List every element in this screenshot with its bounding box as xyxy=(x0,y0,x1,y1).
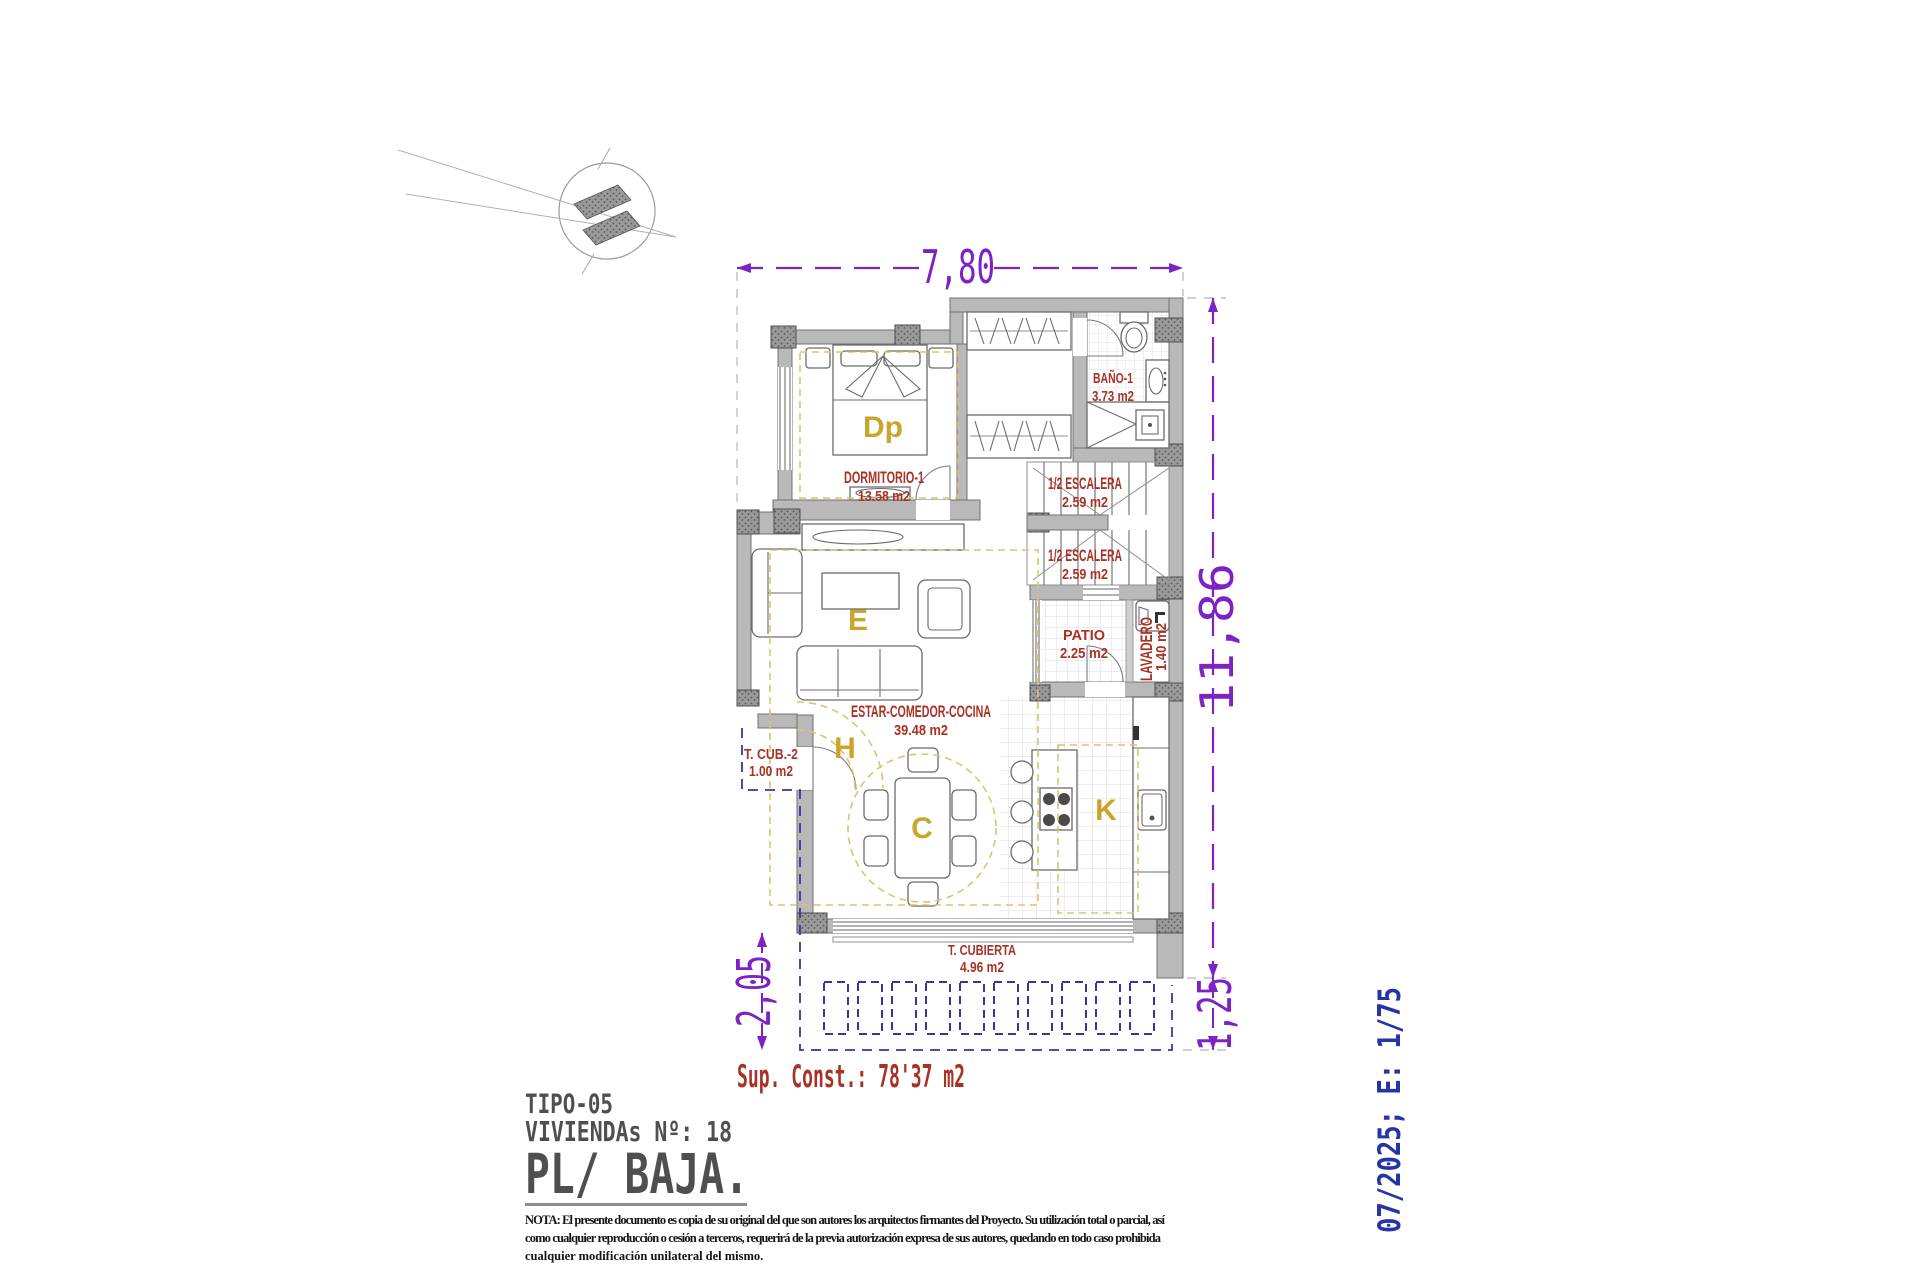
zone-label-dp: Dp xyxy=(863,411,903,444)
patio-name: PATIO xyxy=(1063,628,1105,644)
window-stairs xyxy=(1083,585,1119,600)
dimension-bottom-right: 1,25 xyxy=(1183,977,1242,1051)
note-line-2: como cualquier reproducción o cesión a t… xyxy=(525,1231,1162,1245)
bath-sink-icon xyxy=(1146,360,1169,402)
kitchen-sink-icon xyxy=(1138,790,1166,830)
label-tcub2: T. CUB.-2 1.00 m2 xyxy=(744,747,798,780)
zone-label-h: H xyxy=(834,732,856,765)
tcubierta-area: 4.96 m2 xyxy=(960,959,1004,976)
dormitorio-name: DORMITORIO-1 xyxy=(844,469,924,487)
bano-name: BAÑO-1 xyxy=(1093,369,1133,387)
north-arrow-icon xyxy=(398,148,676,274)
label-lavadero: LAVADERO 1.40 m2 xyxy=(1138,617,1170,681)
closet2-icon xyxy=(967,415,1071,458)
closet-icon xyxy=(967,312,1071,350)
escalera1-name: 1/2 ESCALERA xyxy=(1048,475,1122,493)
escalera1-area: 2.59 m2 xyxy=(1062,494,1108,511)
window-bedroom xyxy=(778,367,792,470)
tcubierta-name: T. CUBIERTA xyxy=(948,943,1016,959)
stool-icon xyxy=(1011,761,1033,863)
label-tcubierta: T. CUBIERTA 4.96 m2 xyxy=(948,943,1016,976)
dimension-top-label: 7,80 xyxy=(921,240,995,294)
estar-area: 39.48 m2 xyxy=(894,722,948,739)
dimension-right-label: 11,86 xyxy=(1190,563,1244,713)
tcub2-area: 1.00 m2 xyxy=(749,763,793,780)
lavadero-area: 1.40 m2 xyxy=(1153,623,1170,671)
label-escalera-2: 1/2 ESCALERA 2.59 m2 xyxy=(1048,547,1122,583)
title-underline xyxy=(525,1203,747,1206)
date-scale-stamp: 07/2025; E: 1/75 xyxy=(1372,987,1408,1233)
dimension-bottom-right-label: 1,25 xyxy=(1188,977,1242,1051)
title-block: TIPO-05 VIVIENDAs Nº: 18 PL/ BAJA. xyxy=(525,1089,749,1206)
escalera2-area: 2.59 m2 xyxy=(1062,566,1108,583)
patio-area: 2.25 m2 xyxy=(1060,645,1108,662)
zone-label-k: K xyxy=(1095,794,1117,827)
zone-label-c: C xyxy=(911,812,933,845)
note-line-1: NOTA: El presente documento es copia de … xyxy=(525,1213,1166,1227)
dimension-bottom-left-label: 2,05 xyxy=(727,955,781,1027)
tcub2-name: T. CUB.-2 xyxy=(744,747,798,763)
dormitorio-area: 13.58 m2 xyxy=(858,488,910,505)
shower-icon xyxy=(1087,402,1169,448)
zone-label-e: E xyxy=(848,604,868,637)
escalera2-name: 1/2 ESCALERA xyxy=(1048,547,1122,565)
dimension-right: 11,86 xyxy=(1187,298,1244,978)
sup-const-label: Sup. Const.: 78'37 m2 xyxy=(737,1059,965,1095)
dimension-bottom-left: 2,05 xyxy=(727,933,781,1050)
sideboard-icon xyxy=(802,524,964,550)
estar-name: ESTAR-COMEDOR-COCINA xyxy=(851,703,991,721)
label-escalera-1: 1/2 ESCALERA 2.59 m2 xyxy=(1048,475,1122,511)
terrace-pergola xyxy=(824,982,1154,1034)
sofa-icon xyxy=(797,646,922,700)
window-living xyxy=(833,919,1133,942)
bano-area: 3.73 m2 xyxy=(1092,388,1134,405)
note-paragraph: NOTA: El presente documento es copia de … xyxy=(525,1213,1166,1263)
loveseat-icon xyxy=(752,549,802,637)
planta-label: PL/ BAJA. xyxy=(525,1142,749,1206)
label-estar: ESTAR-COMEDOR-COCINA 39.48 m2 xyxy=(851,703,991,739)
floor-plan-sheet: 7,80 11,86 2,05 1,25 BAÑO-1 3.73 m2 DORM… xyxy=(0,0,1920,1280)
toilet-icon xyxy=(1120,312,1148,352)
window-patio xyxy=(1030,600,1042,682)
note-line-3: cualquier modificación unilateral del mi… xyxy=(525,1249,763,1263)
armchair-icon xyxy=(918,580,970,638)
label-patio: PATIO 2.25 m2 xyxy=(1060,628,1108,662)
